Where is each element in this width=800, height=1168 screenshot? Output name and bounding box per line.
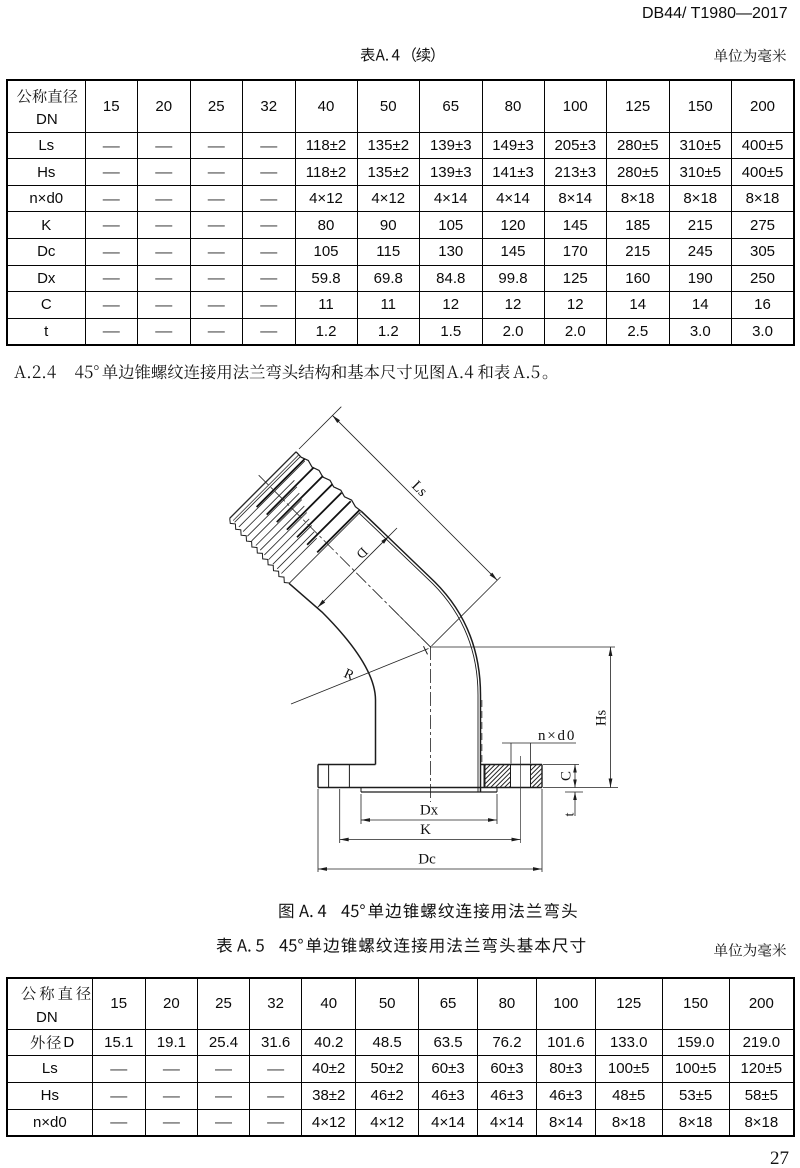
svg-text:Dc: Dc — [418, 852, 436, 868]
svg-text:Ls: Ls — [408, 478, 430, 500]
svg-text:Dx: Dx — [420, 803, 439, 819]
svg-text:R: R — [341, 666, 356, 684]
svg-text:C: C — [559, 771, 575, 781]
svg-text:n×d0: n×d0 — [538, 728, 576, 744]
svg-text:t: t — [563, 813, 578, 817]
svg-text:D: D — [353, 544, 371, 562]
svg-text:Hs: Hs — [594, 710, 610, 726]
svg-text:K: K — [420, 822, 431, 838]
